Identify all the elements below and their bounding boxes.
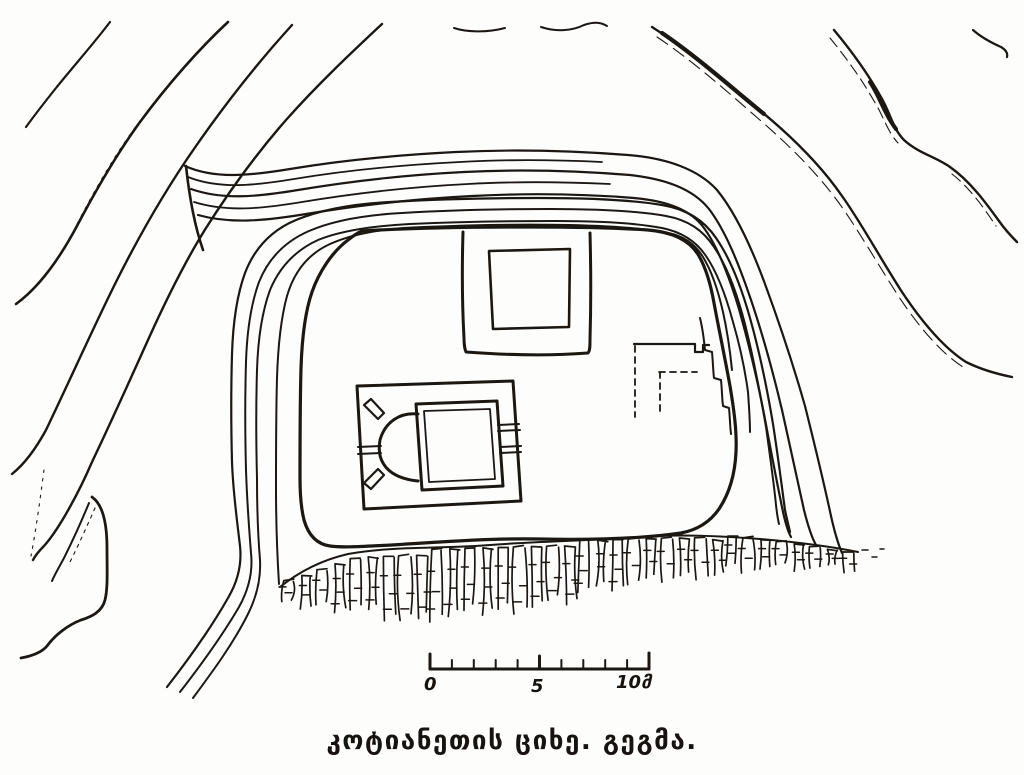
church-complex <box>357 381 521 509</box>
wall-jagged-east-face <box>700 318 731 434</box>
church-apse <box>379 414 418 481</box>
cliff-rocks <box>279 536 884 622</box>
contour-line <box>652 27 1012 377</box>
ruin-dashed-walls <box>635 346 697 417</box>
ruin-solid-wall <box>634 344 709 352</box>
figure-caption: კოტიანეთის ციხე. გეგმა. <box>0 726 1024 756</box>
scale-major-ticks <box>430 653 649 669</box>
contour-line <box>12 25 292 474</box>
terrace-line <box>185 151 842 553</box>
terrain-contours-northwest <box>12 22 382 560</box>
contour-line-bold <box>662 33 764 114</box>
contour-dash <box>75 31 219 228</box>
ruined-building <box>634 344 709 417</box>
terrace-line-road <box>167 198 790 687</box>
terrain-contours-northeast <box>454 23 1017 377</box>
fortress-plan-figure: 0 5 10მ კოტიანეთის ციხე. გეგმა. <box>0 0 1024 775</box>
contour-line <box>33 24 382 560</box>
apse-buttress-south <box>364 469 384 489</box>
scale-bar: 0 5 10მ <box>424 653 653 697</box>
tower-inner-chamber <box>489 249 570 329</box>
apse-buttress-north <box>364 399 384 419</box>
spur-inner-edge <box>52 503 89 581</box>
contour-line <box>834 30 1017 242</box>
contour-dash <box>31 470 44 556</box>
contour-line-bold <box>870 82 896 129</box>
rock-block-sides <box>282 536 855 622</box>
scale-label-0: 0 <box>424 674 437 695</box>
corner-tower <box>462 232 590 355</box>
site-plan-drawing: 0 5 10მ <box>0 0 1024 775</box>
rock-spur-southwest <box>21 497 107 658</box>
contour-line <box>16 22 228 304</box>
spur-outer-edge <box>21 497 107 658</box>
contour-line <box>454 28 505 31</box>
scale-label-5: 5 <box>531 676 544 697</box>
contour-line <box>26 22 110 127</box>
contour-dash <box>830 38 996 226</box>
church-nave-inner <box>424 409 495 482</box>
contour-hook <box>973 30 1007 57</box>
cliff-top-line <box>280 536 858 587</box>
scale-label-10m: 10მ <box>616 672 653 693</box>
terrace-line <box>276 225 732 584</box>
terrace-line-road <box>180 209 779 692</box>
contour-line <box>541 23 607 30</box>
